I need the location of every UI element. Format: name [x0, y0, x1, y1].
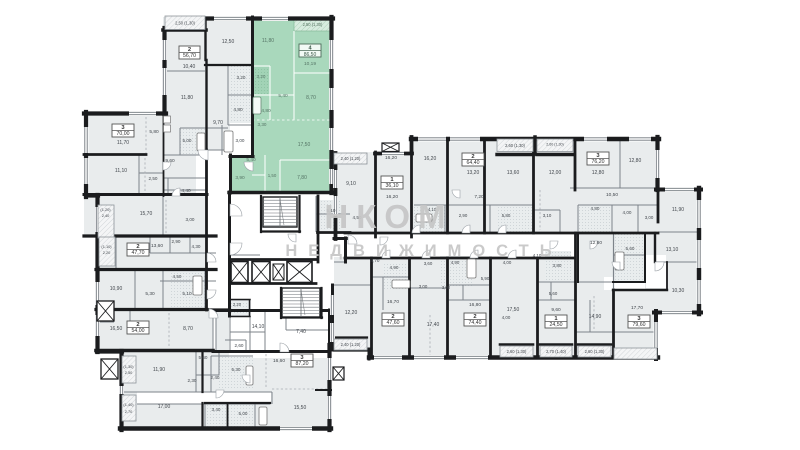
svg-text:2,90: 2,90 [172, 239, 181, 244]
svg-text:13,60: 13,60 [151, 243, 163, 249]
svg-text:56,70: 56,70 [183, 53, 196, 59]
svg-text:2,60 (1,30): 2,60 (1,30) [546, 143, 563, 147]
svg-text:2,90: 2,90 [459, 213, 468, 218]
svg-text:2,50 (1,30): 2,50 (1,30) [303, 22, 323, 27]
svg-text:17,40: 17,40 [427, 322, 440, 328]
svg-text:17,50: 17,50 [298, 142, 311, 148]
svg-text:17,70: 17,70 [631, 305, 643, 311]
svg-text:76,20: 76,20 [592, 159, 605, 165]
svg-text:11,70: 11,70 [117, 140, 129, 146]
svg-text:12,20: 12,20 [345, 310, 358, 316]
svg-text:10,30: 10,30 [672, 288, 685, 294]
svg-text:12,80: 12,80 [592, 170, 605, 176]
svg-text:4,40: 4,40 [181, 188, 191, 194]
svg-text:8,70: 8,70 [306, 95, 316, 101]
svg-text:3,00: 3,00 [186, 217, 195, 222]
svg-text:11,90: 11,90 [153, 367, 165, 373]
svg-text:7,40: 7,40 [296, 329, 306, 335]
svg-text:(1,20): (1,20) [100, 207, 111, 212]
svg-text:5,30: 5,30 [145, 291, 155, 297]
svg-text:16,60: 16,60 [273, 358, 285, 364]
svg-text:(1,10): (1,10) [101, 244, 112, 249]
svg-text:2,40 (1,20): 2,40 (1,20) [341, 156, 361, 161]
svg-text:5,40: 5,40 [278, 93, 288, 99]
svg-text:64,40: 64,40 [467, 160, 480, 166]
svg-text:11,90: 11,90 [672, 207, 684, 213]
svg-text:4,00: 4,00 [623, 210, 632, 215]
svg-text:10,19: 10,19 [304, 61, 316, 67]
svg-text:24,50: 24,50 [550, 322, 563, 328]
svg-text:2,20: 2,20 [103, 250, 111, 255]
svg-text:12,00: 12,00 [549, 170, 562, 176]
svg-text:4,80: 4,80 [591, 206, 600, 211]
svg-text:14,10: 14,10 [252, 324, 265, 330]
svg-text:79,60: 79,60 [633, 322, 646, 328]
svg-text:8,70: 8,70 [183, 326, 193, 332]
svg-text:10,50: 10,50 [606, 192, 618, 198]
svg-text:3,20: 3,20 [257, 74, 266, 79]
svg-text:16,20: 16,20 [385, 155, 397, 161]
svg-text:5,60: 5,60 [549, 291, 558, 296]
svg-text:3,10: 3,10 [543, 213, 552, 218]
svg-text:5,10: 5,10 [182, 291, 192, 297]
svg-text:1,50: 1,50 [268, 173, 277, 178]
svg-text:17,50: 17,50 [507, 307, 520, 313]
svg-text:7,20: 7,20 [474, 194, 484, 200]
svg-text:10,90: 10,90 [110, 286, 123, 292]
svg-text:4,90: 4,90 [451, 260, 460, 265]
svg-text:4,90: 4,90 [390, 265, 399, 270]
svg-text:3,40: 3,40 [212, 407, 221, 412]
svg-text:17,00: 17,00 [158, 404, 171, 410]
svg-text:(1,40): (1,40) [123, 402, 134, 407]
svg-text:16,20: 16,20 [424, 156, 437, 162]
svg-text:2,20: 2,20 [233, 302, 242, 307]
svg-text:2,50: 2,50 [149, 176, 158, 181]
svg-text:4,80: 4,80 [261, 108, 271, 114]
svg-text:2,50 (1,30): 2,50 (1,30) [175, 20, 195, 25]
svg-text:5,80: 5,80 [149, 129, 159, 135]
svg-text:74,40: 74,40 [469, 320, 482, 326]
svg-text:3,60: 3,60 [424, 261, 433, 266]
svg-text:3,20: 3,20 [237, 75, 246, 80]
svg-text:5,00: 5,00 [183, 138, 192, 143]
svg-text:36,10: 36,10 [386, 183, 399, 189]
svg-text:11,80: 11,80 [181, 95, 193, 101]
svg-text:9,10: 9,10 [346, 181, 356, 187]
svg-text:5,30: 5,30 [232, 367, 241, 372]
svg-text:3,90: 3,90 [235, 175, 245, 181]
svg-text:5,60: 5,60 [626, 246, 635, 251]
svg-text:54,00: 54,00 [132, 328, 145, 334]
svg-text:12,60: 12,60 [590, 240, 602, 246]
svg-text:2,60 (1,30): 2,60 (1,30) [585, 349, 605, 354]
svg-text:3,00: 3,00 [645, 215, 654, 220]
svg-text:НЕДВИЖИМОСТЬ: НЕДВИЖИМОСТЬ [285, 242, 562, 260]
svg-text:3,00: 3,00 [419, 284, 428, 289]
svg-text:10,40: 10,40 [183, 64, 196, 70]
svg-text:2,40: 2,40 [211, 375, 220, 380]
svg-text:16,80: 16,80 [469, 302, 481, 308]
svg-text:13,10: 13,10 [666, 247, 679, 253]
svg-text:5,90: 5,90 [481, 276, 490, 281]
svg-text:2,70 (1,40): 2,70 (1,40) [546, 349, 566, 354]
svg-text:12,80: 12,80 [629, 158, 642, 164]
svg-text:14,90: 14,90 [589, 314, 602, 320]
svg-text:2,70: 2,70 [125, 409, 133, 414]
svg-text:7,80: 7,80 [297, 175, 307, 181]
svg-text:11,10: 11,10 [115, 168, 127, 174]
svg-text:47,60: 47,60 [387, 320, 400, 326]
svg-text:13,60: 13,60 [507, 170, 520, 176]
svg-text:9,60: 9,60 [551, 307, 561, 313]
svg-text:2,40: 2,40 [102, 213, 110, 218]
svg-text:3,00: 3,00 [236, 138, 245, 143]
svg-text:2,60 (1,30): 2,60 (1,30) [507, 349, 527, 354]
svg-text:3,00: 3,00 [442, 285, 451, 290]
svg-text:15,70: 15,70 [140, 211, 153, 217]
svg-text:3,30: 3,30 [258, 122, 267, 127]
svg-text:47,70: 47,70 [132, 250, 145, 256]
svg-text:4,30: 4,30 [192, 244, 201, 249]
svg-text:5,80: 5,80 [502, 213, 511, 218]
svg-text:3,80: 3,80 [553, 263, 562, 268]
svg-text:4,00: 4,00 [502, 315, 511, 320]
svg-text:16,50: 16,50 [110, 326, 123, 332]
svg-text:86,50: 86,50 [304, 52, 317, 58]
svg-text:12,50: 12,50 [222, 39, 235, 45]
svg-text:5,00: 5,00 [239, 411, 248, 416]
svg-text:5,60: 5,60 [199, 355, 208, 360]
svg-text:2,60: 2,60 [235, 343, 244, 348]
svg-text:4,00: 4,00 [503, 260, 512, 265]
svg-text:НКОМ: НКОМ [324, 198, 453, 235]
svg-text:9,70: 9,70 [213, 120, 223, 126]
svg-text:2,30: 2,30 [188, 378, 197, 383]
svg-text:87,20: 87,20 [296, 361, 309, 367]
svg-text:2,50: 2,50 [125, 370, 133, 375]
svg-text:9,60: 9,60 [165, 158, 175, 164]
svg-text:4,80: 4,80 [233, 107, 243, 113]
svg-text:70,00: 70,00 [117, 131, 130, 137]
svg-text:(1,30): (1,30) [123, 364, 134, 369]
svg-text:2,60 (1,30): 2,60 (1,30) [505, 143, 525, 148]
svg-text:2,40 (1,20): 2,40 (1,20) [341, 342, 361, 347]
svg-text:4,50: 4,50 [173, 274, 182, 279]
svg-text:15,50: 15,50 [294, 405, 307, 411]
svg-text:11,80: 11,80 [262, 38, 274, 44]
svg-text:13,20: 13,20 [467, 170, 480, 176]
svg-text:16,70: 16,70 [387, 299, 399, 305]
